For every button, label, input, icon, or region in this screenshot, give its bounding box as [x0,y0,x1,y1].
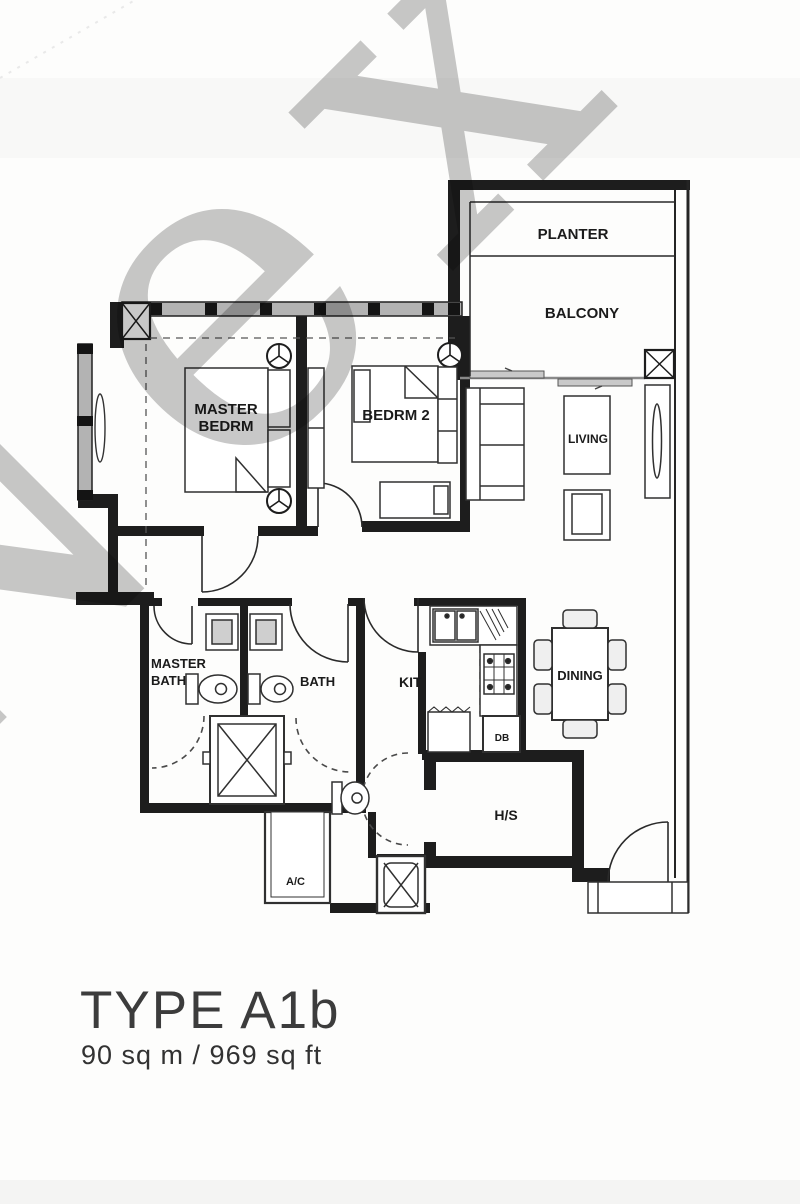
master-bedroom-door [202,536,258,592]
furniture-layer [185,366,688,913]
living-window-panel [645,385,670,498]
entrance-step [588,882,688,913]
wardrobe [308,368,324,488]
vanity-basin [250,614,282,650]
bedroom-window-wall [122,302,462,316]
sliding-door-leaf [558,379,632,386]
room-label-hs: H/S [494,807,517,823]
room-label-master-bedroom-line2: BEDRM [199,418,254,435]
room-label-master-bath-line1: MASTER [151,656,207,671]
fan-coil-symbol [267,344,291,368]
kitchen-hob [484,654,514,694]
room-label-kitchen: KIT [399,674,422,690]
master-bath-door [154,606,192,644]
floor-plan-page: PLANTER BALCONY MASTER BEDRM BEDRM 2 LIV… [0,0,800,1204]
unit-area-text: 90 sq m / 969 sq ft [81,1040,322,1071]
bedroom2-door [318,483,362,527]
walls-layer [76,180,690,913]
unit-type-title: TYPE A1b [80,980,341,1041]
bedroom2-desk [380,482,450,518]
toilet [186,674,237,704]
column-x-marker [122,303,150,339]
toilet [332,782,369,814]
room-label-master-bedroom-line1: MASTER [194,401,258,418]
casement-window-pane [95,394,105,462]
fan-coil-symbol [267,489,291,513]
room-label-living: LIVING [568,432,608,446]
shower-screen-swing-dashed [296,718,350,772]
shower-stall [203,716,291,804]
room-label-dining: DINING [557,668,603,683]
refrigerator [428,707,470,752]
wardrobe [438,367,457,463]
fan-coil-symbol [438,343,462,367]
room-label-planter: PLANTER [538,226,609,243]
scan-artifact-line [0,0,135,78]
bath-door [290,604,348,662]
shower-screen-swing-dashed [152,716,204,768]
room-label-ac: A/C [286,876,305,888]
sliding-door-leaf [470,371,544,378]
column-x-marker [645,350,674,378]
toilet [248,674,293,704]
ac-ledge-box [265,812,330,903]
room-label-bath: BATH [300,674,335,689]
right-outer-wall [675,180,688,913]
yard-shower-trap [377,856,425,913]
armchair [564,490,610,540]
sofa [466,388,524,500]
entrance-door [608,822,668,882]
kitchen-door [364,598,418,652]
room-label-db: DB [495,733,509,744]
room-label-balcony: BALCONY [545,305,619,322]
room-label-master-bath-line2: BATH [151,673,186,688]
room-label-bedroom2: BEDRM 2 [362,407,430,424]
vanity-basin [206,614,238,650]
